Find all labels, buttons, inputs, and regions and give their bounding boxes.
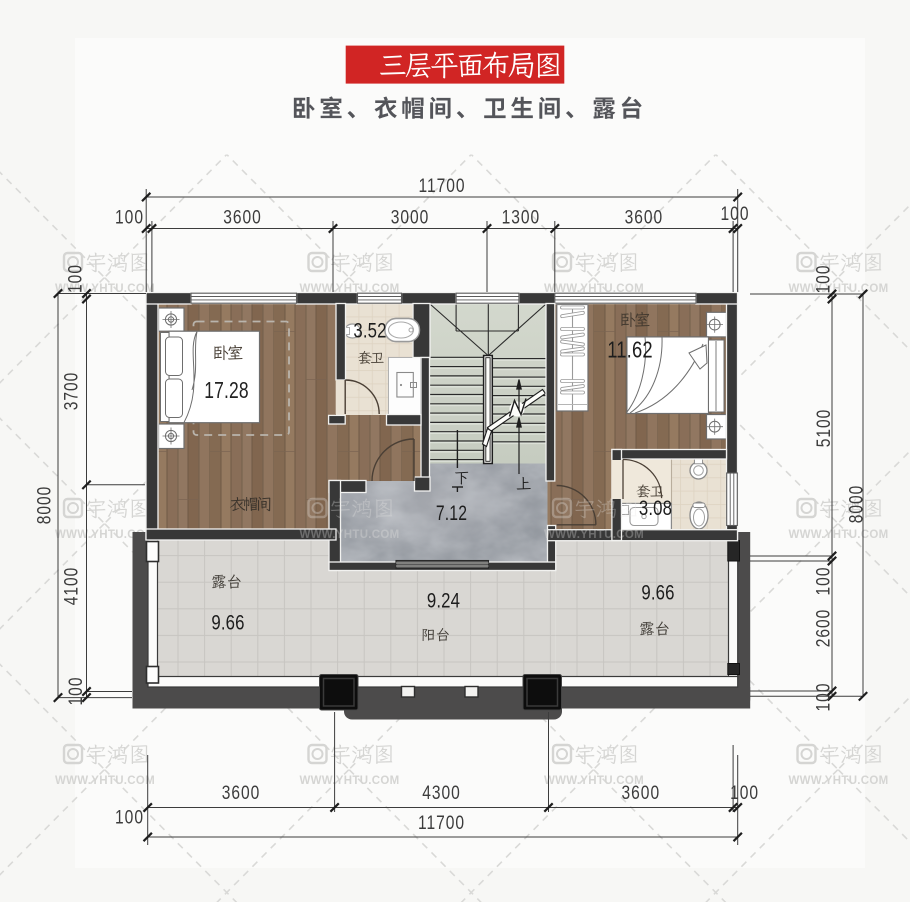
- svg-text:100: 100: [812, 567, 834, 596]
- svg-text:11700: 11700: [418, 175, 465, 197]
- svg-text:100: 100: [64, 264, 86, 293]
- svg-text:8000: 8000: [33, 486, 55, 525]
- svg-text:WWW.YHTU.COM: WWW.YHTU.COM: [299, 775, 399, 787]
- svg-text:100: 100: [812, 683, 834, 712]
- svg-text:100: 100: [812, 265, 834, 294]
- svg-text:17.28: 17.28: [204, 379, 248, 404]
- svg-text:3.08: 3.08: [639, 497, 672, 520]
- svg-text:4300: 4300: [422, 782, 461, 804]
- svg-text:100: 100: [115, 206, 144, 228]
- svg-text:3.52: 3.52: [353, 320, 386, 343]
- svg-text:1300: 1300: [502, 206, 541, 228]
- svg-text:7.12: 7.12: [436, 501, 467, 525]
- svg-text:11.62: 11.62: [607, 338, 652, 363]
- svg-text:3600: 3600: [622, 782, 661, 804]
- svg-text:3700: 3700: [60, 372, 82, 411]
- svg-text:3600: 3600: [223, 206, 262, 228]
- svg-text:100: 100: [65, 677, 87, 706]
- svg-text:5100: 5100: [813, 409, 835, 448]
- svg-text:3600: 3600: [625, 206, 664, 228]
- svg-text:9.66: 9.66: [641, 582, 674, 605]
- svg-text:WWW.YHTU.COM: WWW.YHTU.COM: [299, 529, 399, 541]
- svg-text:WWW.YHTU.COM: WWW.YHTU.COM: [788, 529, 888, 541]
- svg-text:WWW.YHTU.COM: WWW.YHTU.COM: [55, 775, 155, 787]
- svg-text:4100: 4100: [60, 567, 82, 606]
- svg-text:WWW.YHTU.COM: WWW.YHTU.COM: [544, 529, 644, 541]
- svg-text:11700: 11700: [418, 812, 465, 834]
- svg-text:8000: 8000: [845, 485, 867, 524]
- svg-text:WWW.YHTU.COM: WWW.YHTU.COM: [788, 283, 888, 295]
- svg-text:3000: 3000: [391, 206, 430, 228]
- svg-text:WWW.YHTU.COM: WWW.YHTU.COM: [788, 775, 888, 787]
- svg-text:9.66: 9.66: [211, 612, 244, 635]
- svg-text:100: 100: [730, 782, 759, 804]
- svg-text:2600: 2600: [812, 609, 834, 648]
- svg-text:100: 100: [721, 203, 750, 225]
- svg-text:100: 100: [115, 806, 144, 828]
- svg-text:3600: 3600: [222, 782, 261, 804]
- svg-text:9.24: 9.24: [427, 590, 461, 613]
